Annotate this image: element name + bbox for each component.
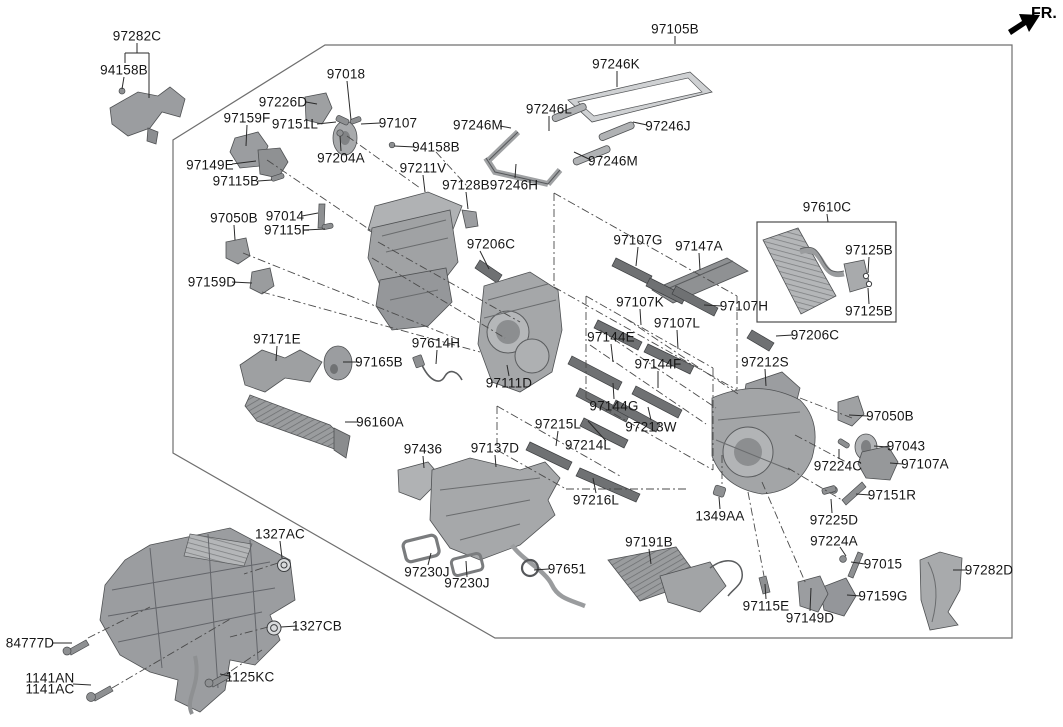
leader-line: [556, 431, 558, 446]
part-label-97151R: 97151R: [868, 488, 917, 502]
part-label-97159F: 97159F: [224, 111, 271, 125]
part-label-97246J: 97246J: [645, 119, 691, 133]
part-97212S-scroll-core: [734, 438, 762, 466]
part-label-97651: 97651: [548, 562, 587, 576]
part-label-97107H: 97107H: [720, 299, 769, 313]
grommet-97165B: [324, 346, 352, 380]
part-96160A-core: [245, 395, 344, 451]
part-label-97107G: 97107G: [613, 233, 662, 247]
construction-line: [748, 492, 764, 576]
part-label-97224C: 97224C: [814, 459, 863, 473]
bolt-1125KC-head: [205, 679, 213, 687]
bolt-84777D-head: [63, 647, 71, 655]
gasket-97246L: [598, 121, 635, 141]
part-label-97213W: 97213W: [625, 420, 676, 434]
dot-97224A: [840, 556, 847, 563]
leader-line: [361, 123, 380, 124]
part-label-97216L: 97216L: [573, 493, 619, 507]
part-label-97204A: 97204A: [317, 151, 365, 165]
part-label-97107L: 97107L: [654, 316, 700, 330]
leader-line: [831, 499, 832, 513]
part-label-97111D: 97111D: [486, 376, 533, 390]
part-label-97144F: 97144F: [635, 357, 682, 371]
part-label-97159G: 97159G: [858, 589, 907, 603]
part-97282C-foot: [147, 128, 158, 144]
bolt-1141-head: [87, 693, 96, 702]
oring-97125B-2: [866, 281, 871, 286]
part-label-97211V: 97211V: [400, 161, 447, 175]
part-label-97107A: 97107A: [901, 457, 949, 471]
part-label-97246H: 97246H: [490, 178, 539, 192]
seal-97107G: [612, 258, 652, 284]
seal-97206C-left: [475, 260, 502, 283]
part-label-94158B: 94158B: [100, 63, 148, 77]
pin-97015: [848, 552, 863, 578]
part-label-1349AA: 1349AA: [695, 509, 744, 523]
part-label-97171E: 97171E: [253, 332, 301, 346]
part-97171E-duct: [240, 350, 322, 392]
leader-line: [73, 684, 91, 685]
part-label-97018: 97018: [327, 67, 366, 81]
leader-line: [868, 288, 869, 304]
part-label-97246M: 97246M: [588, 154, 638, 168]
bracket-97128B: [462, 210, 478, 228]
part-label-97014: 97014: [266, 209, 305, 223]
gasket-97230J-1: [402, 534, 440, 563]
leader-line: [611, 344, 613, 362]
part-label-97050B: 97050B: [210, 211, 258, 225]
part-label-97125B: 97125B: [845, 304, 893, 318]
part-label-97436: 97436: [404, 442, 443, 456]
part-label-97191B: 97191B: [625, 535, 673, 549]
part-label-97137D: 97137D: [471, 441, 520, 455]
screw-94158B-2: [389, 142, 395, 148]
part-label-97282C: 97282C: [113, 29, 162, 43]
screw-97115E: [759, 576, 770, 594]
leader-line: [677, 330, 678, 349]
wire-97614H: [421, 363, 462, 381]
part-label-97107: 97107: [379, 116, 418, 130]
part-label-97149E: 97149E: [186, 158, 234, 172]
part-label-97107K: 97107K: [616, 295, 664, 309]
part-97111D-drum2: [515, 339, 549, 373]
part-label-97226D: 97226D: [259, 95, 308, 109]
part-97111D-drum-core: [496, 320, 520, 344]
grommet-97165B-hole: [330, 364, 338, 374]
clip-97050B-right: [838, 396, 864, 426]
leader-line: [258, 180, 272, 181]
leader-line: [640, 309, 641, 325]
part-label-97115E: 97115E: [743, 599, 790, 613]
part-96160A-cap: [334, 428, 350, 458]
part-label-97151L: 97151L: [272, 117, 318, 131]
part-label-97230J: 97230J: [444, 576, 490, 590]
nut-1349AA: [713, 485, 727, 498]
part-label-97050B: 97050B: [866, 409, 914, 423]
clip-97050B: [226, 238, 250, 264]
leader-line: [868, 257, 869, 273]
bolt-84777D: [68, 640, 89, 655]
part-label-97214L: 97214L: [565, 438, 611, 452]
part-label-97206C: 97206C: [791, 328, 840, 342]
parts-diagram: 97282C94158B97226D9701897159F97151L97107…: [0, 0, 1063, 727]
leader-line: [466, 192, 468, 209]
part-label-97246K: 97246K: [592, 57, 640, 71]
part-label-97125B: 97125B: [845, 243, 893, 257]
part-label-97614H: 97614H: [412, 336, 461, 350]
part-97282D-cover: [920, 552, 962, 630]
part-label-97282D: 97282D: [965, 563, 1014, 577]
construction-line: [762, 482, 806, 584]
part-label-97115F: 97115F: [264, 223, 310, 237]
pin-97107: [350, 116, 362, 124]
leader-line: [699, 253, 700, 270]
part-label-1327CB: 1327CB: [292, 619, 342, 633]
part-label-84777D: 84777D: [6, 636, 55, 650]
part-label-97165B: 97165B: [355, 355, 403, 369]
part-label-97144G: 97144G: [589, 399, 638, 413]
leader-line: [436, 350, 437, 364]
gasket-97246H: [486, 132, 560, 184]
part-label-97215L: 97215L: [535, 417, 581, 431]
part-label-97206C: 97206C: [467, 237, 516, 251]
part-label-97105B: 97105B: [651, 22, 699, 36]
part-label-94158B: 94158B: [412, 140, 460, 154]
part-evaporator-core: [763, 228, 836, 314]
part-label-1141AC: 1141AC: [26, 682, 75, 696]
screw-97204A: [337, 130, 343, 136]
part-label-1327AC: 1327AC: [255, 527, 305, 541]
part-label-97015: 97015: [864, 557, 903, 571]
part-label-97159D: 97159D: [188, 275, 237, 289]
leader-line: [827, 214, 828, 222]
part-label-97043: 97043: [887, 439, 926, 453]
part-label-97147A: 97147A: [675, 239, 723, 253]
part-label-97610C: 97610C: [803, 200, 852, 214]
part-97149E: [258, 148, 288, 178]
leader-line: [122, 77, 124, 89]
pin-97224C: [837, 438, 850, 449]
part-label-97144E: 97144E: [587, 330, 635, 344]
leader-line: [423, 175, 425, 192]
part-label-97246M: 97246M: [453, 118, 503, 132]
part-97137D-case: [430, 458, 560, 560]
grommet-1327CB: [267, 621, 281, 635]
part-label-97128B: 97128B: [442, 178, 490, 192]
part-label-97225D: 97225D: [810, 513, 859, 527]
leader-line: [234, 225, 235, 240]
part-label-97230J: 97230J: [404, 565, 450, 579]
leader-line: [347, 81, 351, 120]
leader-line: [636, 247, 638, 266]
leader-line: [840, 547, 846, 556]
pin-97151R: [842, 482, 866, 505]
fr-label: FR.: [1031, 5, 1057, 23]
part-label-97115B: 97115B: [213, 174, 260, 188]
part-label-97224A: 97224A: [810, 534, 858, 548]
part-97282C: [110, 87, 185, 136]
part-label-97149D: 97149D: [786, 611, 835, 625]
seal-97206C-right: [747, 330, 774, 351]
part-label-97246L: 97246L: [526, 102, 572, 116]
leader-line: [719, 497, 720, 509]
part-label-96160A: 96160A: [356, 415, 404, 429]
clip-97159D: [250, 268, 274, 294]
part-label-97212S: 97212S: [741, 355, 789, 369]
nut-1327AC: [278, 559, 291, 572]
part-label-1125KC: 1125KC: [226, 670, 275, 684]
oring-97125B-1: [863, 273, 868, 278]
